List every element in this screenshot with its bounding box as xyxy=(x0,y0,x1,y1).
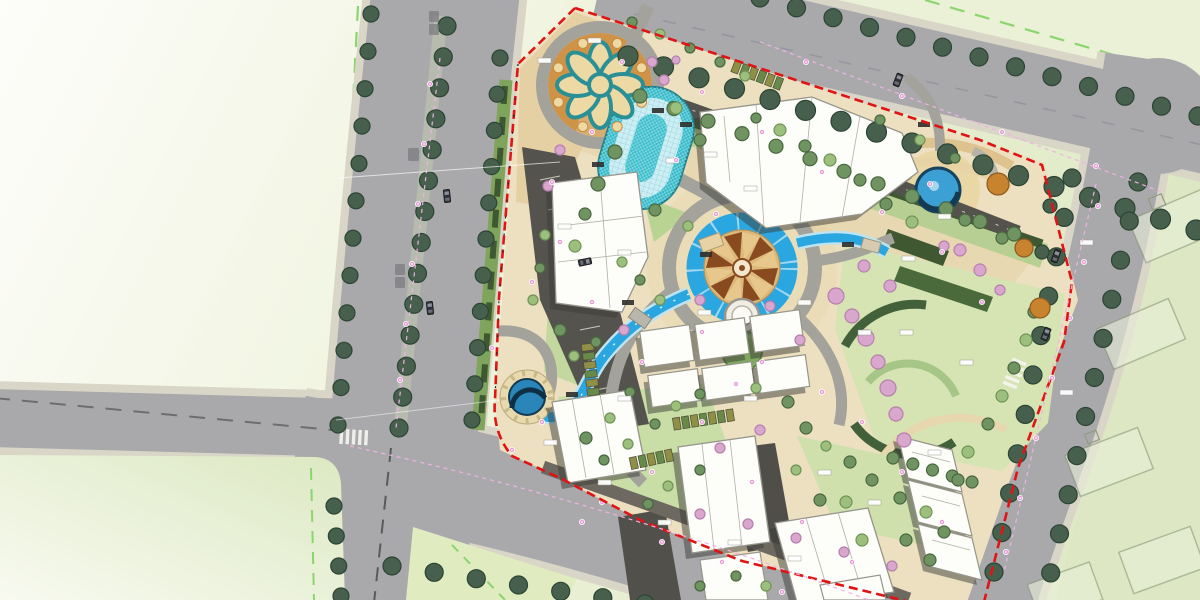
tree-pink xyxy=(845,309,859,323)
tree-light xyxy=(683,221,693,231)
tree-light xyxy=(617,257,627,267)
tree-dark xyxy=(401,326,419,344)
tree-dark xyxy=(467,376,483,392)
tree-mid xyxy=(635,275,645,285)
tree-light xyxy=(920,506,932,518)
tree-pink xyxy=(555,145,565,155)
tree-mid xyxy=(701,114,715,128)
tree-pink xyxy=(871,355,885,369)
car-rear-window xyxy=(428,310,433,313)
tree-pink xyxy=(695,295,705,305)
tree-dark xyxy=(1059,486,1077,504)
plant-marker-core xyxy=(559,241,561,243)
tree-light xyxy=(528,295,538,305)
annotation-tag xyxy=(1060,390,1073,395)
annotation-tag xyxy=(728,540,741,545)
tree-dark xyxy=(1042,564,1060,582)
tree-mid xyxy=(799,140,811,152)
tree-mid xyxy=(814,494,826,506)
tree-mid xyxy=(927,464,939,476)
plant-marker-core xyxy=(781,591,783,593)
tree-mid xyxy=(982,418,994,430)
tree-dark xyxy=(326,498,342,514)
tree-dark xyxy=(824,9,842,27)
tree-mid xyxy=(900,534,912,546)
tree-mid xyxy=(1007,227,1021,241)
tree-dark xyxy=(725,79,745,99)
tree-orange xyxy=(1030,298,1050,318)
tree-dark xyxy=(397,357,415,375)
road-name-glyph xyxy=(395,264,405,275)
tree-dark xyxy=(467,570,485,588)
tree-dark xyxy=(348,193,364,209)
parking-stall xyxy=(583,361,596,369)
annotation-tag xyxy=(960,360,973,365)
tree-light xyxy=(751,383,761,393)
tree-dark xyxy=(897,28,915,46)
tree-mid xyxy=(625,387,635,397)
annotation-tag xyxy=(598,480,611,485)
tree-mid xyxy=(803,152,817,166)
car xyxy=(426,301,434,315)
plant-marker-core xyxy=(591,301,593,303)
mandala-dot xyxy=(612,122,622,132)
tree-light xyxy=(915,135,925,145)
mandala-center xyxy=(589,74,611,96)
annotation-tag xyxy=(588,38,601,43)
parking-stall xyxy=(717,410,726,423)
plant-marker-core xyxy=(641,361,643,363)
tree-mid xyxy=(535,263,545,273)
tree-pink xyxy=(887,561,897,571)
tree-dark xyxy=(1068,447,1086,465)
tree-pink xyxy=(884,280,896,292)
tree-mid xyxy=(938,526,950,538)
tree-mid xyxy=(800,422,812,434)
annotation-tag xyxy=(744,186,757,191)
plant-marker-core xyxy=(801,521,803,523)
plant-marker-core xyxy=(1095,165,1097,167)
tree-mid xyxy=(880,198,892,210)
tree-dark xyxy=(360,43,376,59)
tree-mid xyxy=(844,456,856,468)
parking-stall xyxy=(708,412,717,425)
tree-mid xyxy=(643,499,653,509)
tree-dark xyxy=(973,155,993,175)
plant-marker-core xyxy=(715,213,717,215)
tree-pink xyxy=(672,56,680,64)
tree-mid xyxy=(966,476,978,488)
tree-dark xyxy=(796,100,816,120)
annotation-tag xyxy=(658,520,671,525)
tree-mid xyxy=(695,389,705,399)
parking-stall xyxy=(672,417,681,430)
mandala-dot xyxy=(553,63,563,73)
plant-marker-core xyxy=(761,361,763,363)
plant-marker-core xyxy=(531,281,533,283)
tree-dark xyxy=(354,118,370,134)
road-name-glyph xyxy=(408,148,419,161)
tree-pink xyxy=(647,57,657,67)
plant-marker-core xyxy=(581,521,583,523)
tree-pink xyxy=(828,288,844,304)
tree-pink xyxy=(715,443,725,453)
tree-dark xyxy=(328,528,344,544)
plant-marker-core xyxy=(851,561,853,563)
parking-stall xyxy=(681,416,690,429)
road-name-glyph xyxy=(395,277,405,288)
tree-dark xyxy=(1094,329,1112,347)
tree-mid xyxy=(907,458,919,470)
tree-pink xyxy=(880,380,896,396)
annotation-tag xyxy=(618,396,631,401)
plant-marker-core xyxy=(735,383,737,385)
plant-marker-core xyxy=(941,251,943,253)
tree-mid xyxy=(633,89,647,103)
plant-marker-core xyxy=(901,471,903,473)
annotation-tag-dark xyxy=(700,252,712,257)
tree-mid xyxy=(599,455,609,465)
car-rear-window xyxy=(445,198,450,201)
plant-marker-core xyxy=(701,91,703,93)
plant-marker-core xyxy=(1051,377,1053,379)
tree-light xyxy=(840,496,852,508)
plant-marker-core xyxy=(511,449,513,451)
tree-pink xyxy=(743,519,753,529)
mandala-dot xyxy=(637,63,647,73)
tree-light xyxy=(655,295,665,305)
plant-marker-core xyxy=(861,421,863,423)
tree-mid xyxy=(854,174,866,186)
annotation-tag xyxy=(928,450,941,455)
plant-marker-core xyxy=(805,61,807,63)
plant-marker-core xyxy=(821,391,823,393)
tree-dark xyxy=(1103,290,1121,308)
tree-mid xyxy=(1008,362,1020,374)
tree-pink xyxy=(755,425,765,435)
tree-dark xyxy=(1077,408,1095,426)
parking-stall xyxy=(587,388,600,396)
tree-mid xyxy=(875,115,885,125)
tree-dark xyxy=(985,563,1003,581)
tree-light xyxy=(821,441,831,451)
tree-mid xyxy=(649,204,661,216)
tree-light xyxy=(569,240,581,252)
tree-dark xyxy=(405,295,423,313)
annotation-tag xyxy=(744,396,757,401)
tree-dark xyxy=(472,303,488,319)
plant-marker-core xyxy=(541,421,543,423)
tree-pink xyxy=(659,75,669,85)
tree-dark xyxy=(867,122,887,142)
tree-dark xyxy=(425,563,443,581)
tree-dark xyxy=(434,48,452,66)
tree-dark xyxy=(489,86,505,102)
tree-mid xyxy=(894,492,906,504)
annotation-tag xyxy=(558,224,571,229)
tree-mid xyxy=(608,145,622,159)
plant-marker-core xyxy=(761,131,763,133)
building xyxy=(702,362,756,401)
parking-stall xyxy=(726,409,735,422)
parking-stall xyxy=(585,370,598,378)
tree-light xyxy=(740,71,750,81)
tree-light xyxy=(569,351,579,361)
master-plan-svg xyxy=(0,0,1200,600)
tree-pink xyxy=(995,285,1005,295)
tree-light xyxy=(671,401,681,411)
tree-dark xyxy=(357,81,373,97)
plant-marker-core xyxy=(751,481,753,483)
tree-orange xyxy=(1015,239,1033,257)
tree-mid xyxy=(837,164,851,178)
tree-dark xyxy=(481,195,497,211)
tree-dark xyxy=(1080,78,1098,96)
tree-light xyxy=(774,124,786,136)
mandala-dot xyxy=(553,97,563,107)
tree-light xyxy=(791,465,801,475)
parking-stall xyxy=(586,379,599,387)
tree-dark xyxy=(831,111,851,131)
tree-mid xyxy=(554,324,566,336)
tree-dark xyxy=(351,156,367,172)
plant-marker-core xyxy=(405,323,407,325)
annotation-tag xyxy=(868,500,881,505)
tree-dark xyxy=(1151,209,1171,229)
plant-marker-core xyxy=(701,331,703,333)
tree-light xyxy=(996,390,1008,402)
annotation-tag xyxy=(902,256,915,261)
tree-mid xyxy=(751,113,761,123)
tree-dark xyxy=(1112,251,1130,269)
tree-light xyxy=(962,446,974,458)
plant-marker-core xyxy=(941,521,943,523)
tree-pink xyxy=(695,509,705,519)
tree-mid xyxy=(695,581,705,591)
tree-dark xyxy=(363,6,379,22)
tree-dark xyxy=(1024,366,1042,384)
mandala-dot xyxy=(578,122,588,132)
tree-dark xyxy=(394,388,412,406)
tree-dark xyxy=(345,230,361,246)
annotation-tag xyxy=(798,300,811,305)
plant-marker-core xyxy=(881,211,883,213)
tree-dark xyxy=(1063,169,1081,187)
tree-dark xyxy=(492,50,508,66)
plant-marker-core xyxy=(591,131,593,133)
plant-marker-core xyxy=(621,61,623,63)
tree-mid xyxy=(695,465,705,475)
plant-marker-core xyxy=(1035,437,1037,439)
annotation-tag xyxy=(544,440,557,445)
tree-mid xyxy=(866,474,878,486)
tree-pink xyxy=(619,325,629,335)
tree-dark xyxy=(412,234,430,252)
road-name-glyph xyxy=(429,11,439,22)
plant-marker-core xyxy=(701,421,703,423)
plant-marker-core xyxy=(491,347,493,349)
mandala-dot xyxy=(578,38,588,48)
tree-mid xyxy=(715,57,725,67)
tree-mid xyxy=(580,432,592,444)
mandala-dot xyxy=(612,38,622,48)
plant-marker-core xyxy=(675,159,677,161)
tree-mid xyxy=(782,396,794,408)
field-bottom-left xyxy=(0,455,345,600)
plant-marker-core xyxy=(1097,205,1099,207)
annotation-tag xyxy=(900,330,913,335)
annotation-tag xyxy=(938,214,951,219)
plant-marker-core xyxy=(411,263,413,265)
plant-marker-core xyxy=(721,561,723,563)
annotation-tag xyxy=(538,58,551,63)
tree-dark xyxy=(788,0,806,17)
tree-light xyxy=(663,481,673,491)
annotation-tag-dark xyxy=(566,392,578,397)
tree-dark xyxy=(427,110,445,128)
tree-dark xyxy=(1035,245,1049,259)
tree-mid xyxy=(973,215,987,229)
plant-marker-core xyxy=(821,171,823,173)
annotation-tag xyxy=(698,310,711,315)
tree-dark xyxy=(1051,525,1069,543)
plant-marker-core xyxy=(429,83,431,85)
tree-dark xyxy=(342,268,358,284)
tree-pink xyxy=(795,335,805,345)
tree-mid xyxy=(650,419,660,429)
tree-dark xyxy=(861,19,879,37)
plant-marker-core xyxy=(1083,261,1085,263)
site-plan-canvas xyxy=(0,0,1200,600)
tree-dark xyxy=(689,68,709,88)
tree-pink xyxy=(954,244,966,256)
plaza-medallion-dot xyxy=(739,265,745,271)
plant-marker-core xyxy=(417,203,419,205)
tree-pink xyxy=(889,407,903,421)
tree-light xyxy=(824,154,836,166)
tree-light xyxy=(623,439,633,449)
plant-marker-core xyxy=(551,181,553,183)
plant-marker-core xyxy=(1069,317,1071,319)
tree-light xyxy=(1020,334,1032,346)
tree-light xyxy=(540,230,550,240)
tree-dark xyxy=(1007,58,1025,76)
tree-dark xyxy=(1129,173,1147,191)
annotation-tag-dark xyxy=(652,108,664,113)
annotation-tag xyxy=(618,250,631,255)
tree-mid xyxy=(887,452,899,464)
tree-pink xyxy=(974,264,986,276)
tree-light xyxy=(670,102,682,114)
tree-light xyxy=(761,581,771,591)
tree-mid xyxy=(591,337,601,347)
plant-marker-core xyxy=(423,143,425,145)
tree-mid xyxy=(905,189,919,203)
tree-dark xyxy=(970,48,988,66)
tree-dark xyxy=(486,122,502,138)
car xyxy=(443,189,451,203)
tree-dark xyxy=(552,582,570,600)
tree-dark xyxy=(431,79,449,97)
tree-dark xyxy=(1186,220,1200,240)
car-windshield xyxy=(444,191,449,195)
annotation-tag xyxy=(704,152,717,157)
tree-dark xyxy=(1116,87,1134,105)
plant-marker-core xyxy=(981,301,983,303)
annotation-tag-dark xyxy=(592,162,604,167)
tree-dark xyxy=(1043,68,1061,86)
tree-dark xyxy=(420,172,438,190)
annotation-tag xyxy=(858,330,871,335)
tree-mid xyxy=(731,571,741,581)
tree-dark xyxy=(383,557,401,575)
tree-mid xyxy=(694,134,706,146)
tree-dark xyxy=(470,340,486,356)
tree-dark xyxy=(464,412,480,428)
tree-dark xyxy=(339,305,355,321)
plant-marker-core xyxy=(1019,497,1021,499)
building xyxy=(678,436,770,553)
tree-dark xyxy=(333,380,349,396)
tree-orange xyxy=(987,173,1009,195)
tree-light xyxy=(605,413,615,423)
tree-dark xyxy=(1016,405,1034,423)
tree-dark xyxy=(438,17,456,35)
building xyxy=(750,310,805,353)
building xyxy=(640,325,695,368)
tree-mid xyxy=(871,177,885,191)
tree-dark xyxy=(510,576,528,594)
tree-light xyxy=(856,534,868,546)
tree-dark xyxy=(478,231,494,247)
plant-marker-core xyxy=(651,471,653,473)
tree-mid xyxy=(735,127,749,141)
tree-mid xyxy=(579,208,591,220)
annotation-tag-dark xyxy=(842,242,854,247)
plant-marker-core xyxy=(399,379,401,381)
tree-mid xyxy=(952,474,964,486)
tree-dark xyxy=(934,38,952,56)
tree-light xyxy=(906,216,918,228)
tree-pink xyxy=(858,260,870,272)
tree-dark xyxy=(1085,369,1103,387)
tree-mid xyxy=(950,153,960,163)
tree-pink xyxy=(791,533,801,543)
building xyxy=(695,318,750,361)
plant-marker-core xyxy=(929,183,931,185)
tree-mid xyxy=(996,232,1008,244)
annotation-tag xyxy=(788,556,801,561)
plant-marker-core xyxy=(1005,551,1007,553)
tree-dark xyxy=(1153,97,1171,115)
tree-dark xyxy=(331,558,347,574)
parking-stall xyxy=(690,414,699,427)
parking-stall xyxy=(582,352,595,360)
tree-pink xyxy=(897,433,911,447)
tree-dark xyxy=(390,419,408,437)
tree-dark xyxy=(333,588,349,600)
annotation-tag-dark xyxy=(622,300,634,305)
tree-dark xyxy=(409,264,427,282)
tree-pink xyxy=(839,547,849,557)
car-windshield xyxy=(427,303,432,307)
tree-pink xyxy=(765,301,775,311)
tree-dark xyxy=(1009,166,1029,186)
tree-mid xyxy=(924,554,936,566)
tree-mid xyxy=(959,214,971,226)
annotation-tag xyxy=(818,470,831,475)
tree-dark xyxy=(475,267,491,283)
